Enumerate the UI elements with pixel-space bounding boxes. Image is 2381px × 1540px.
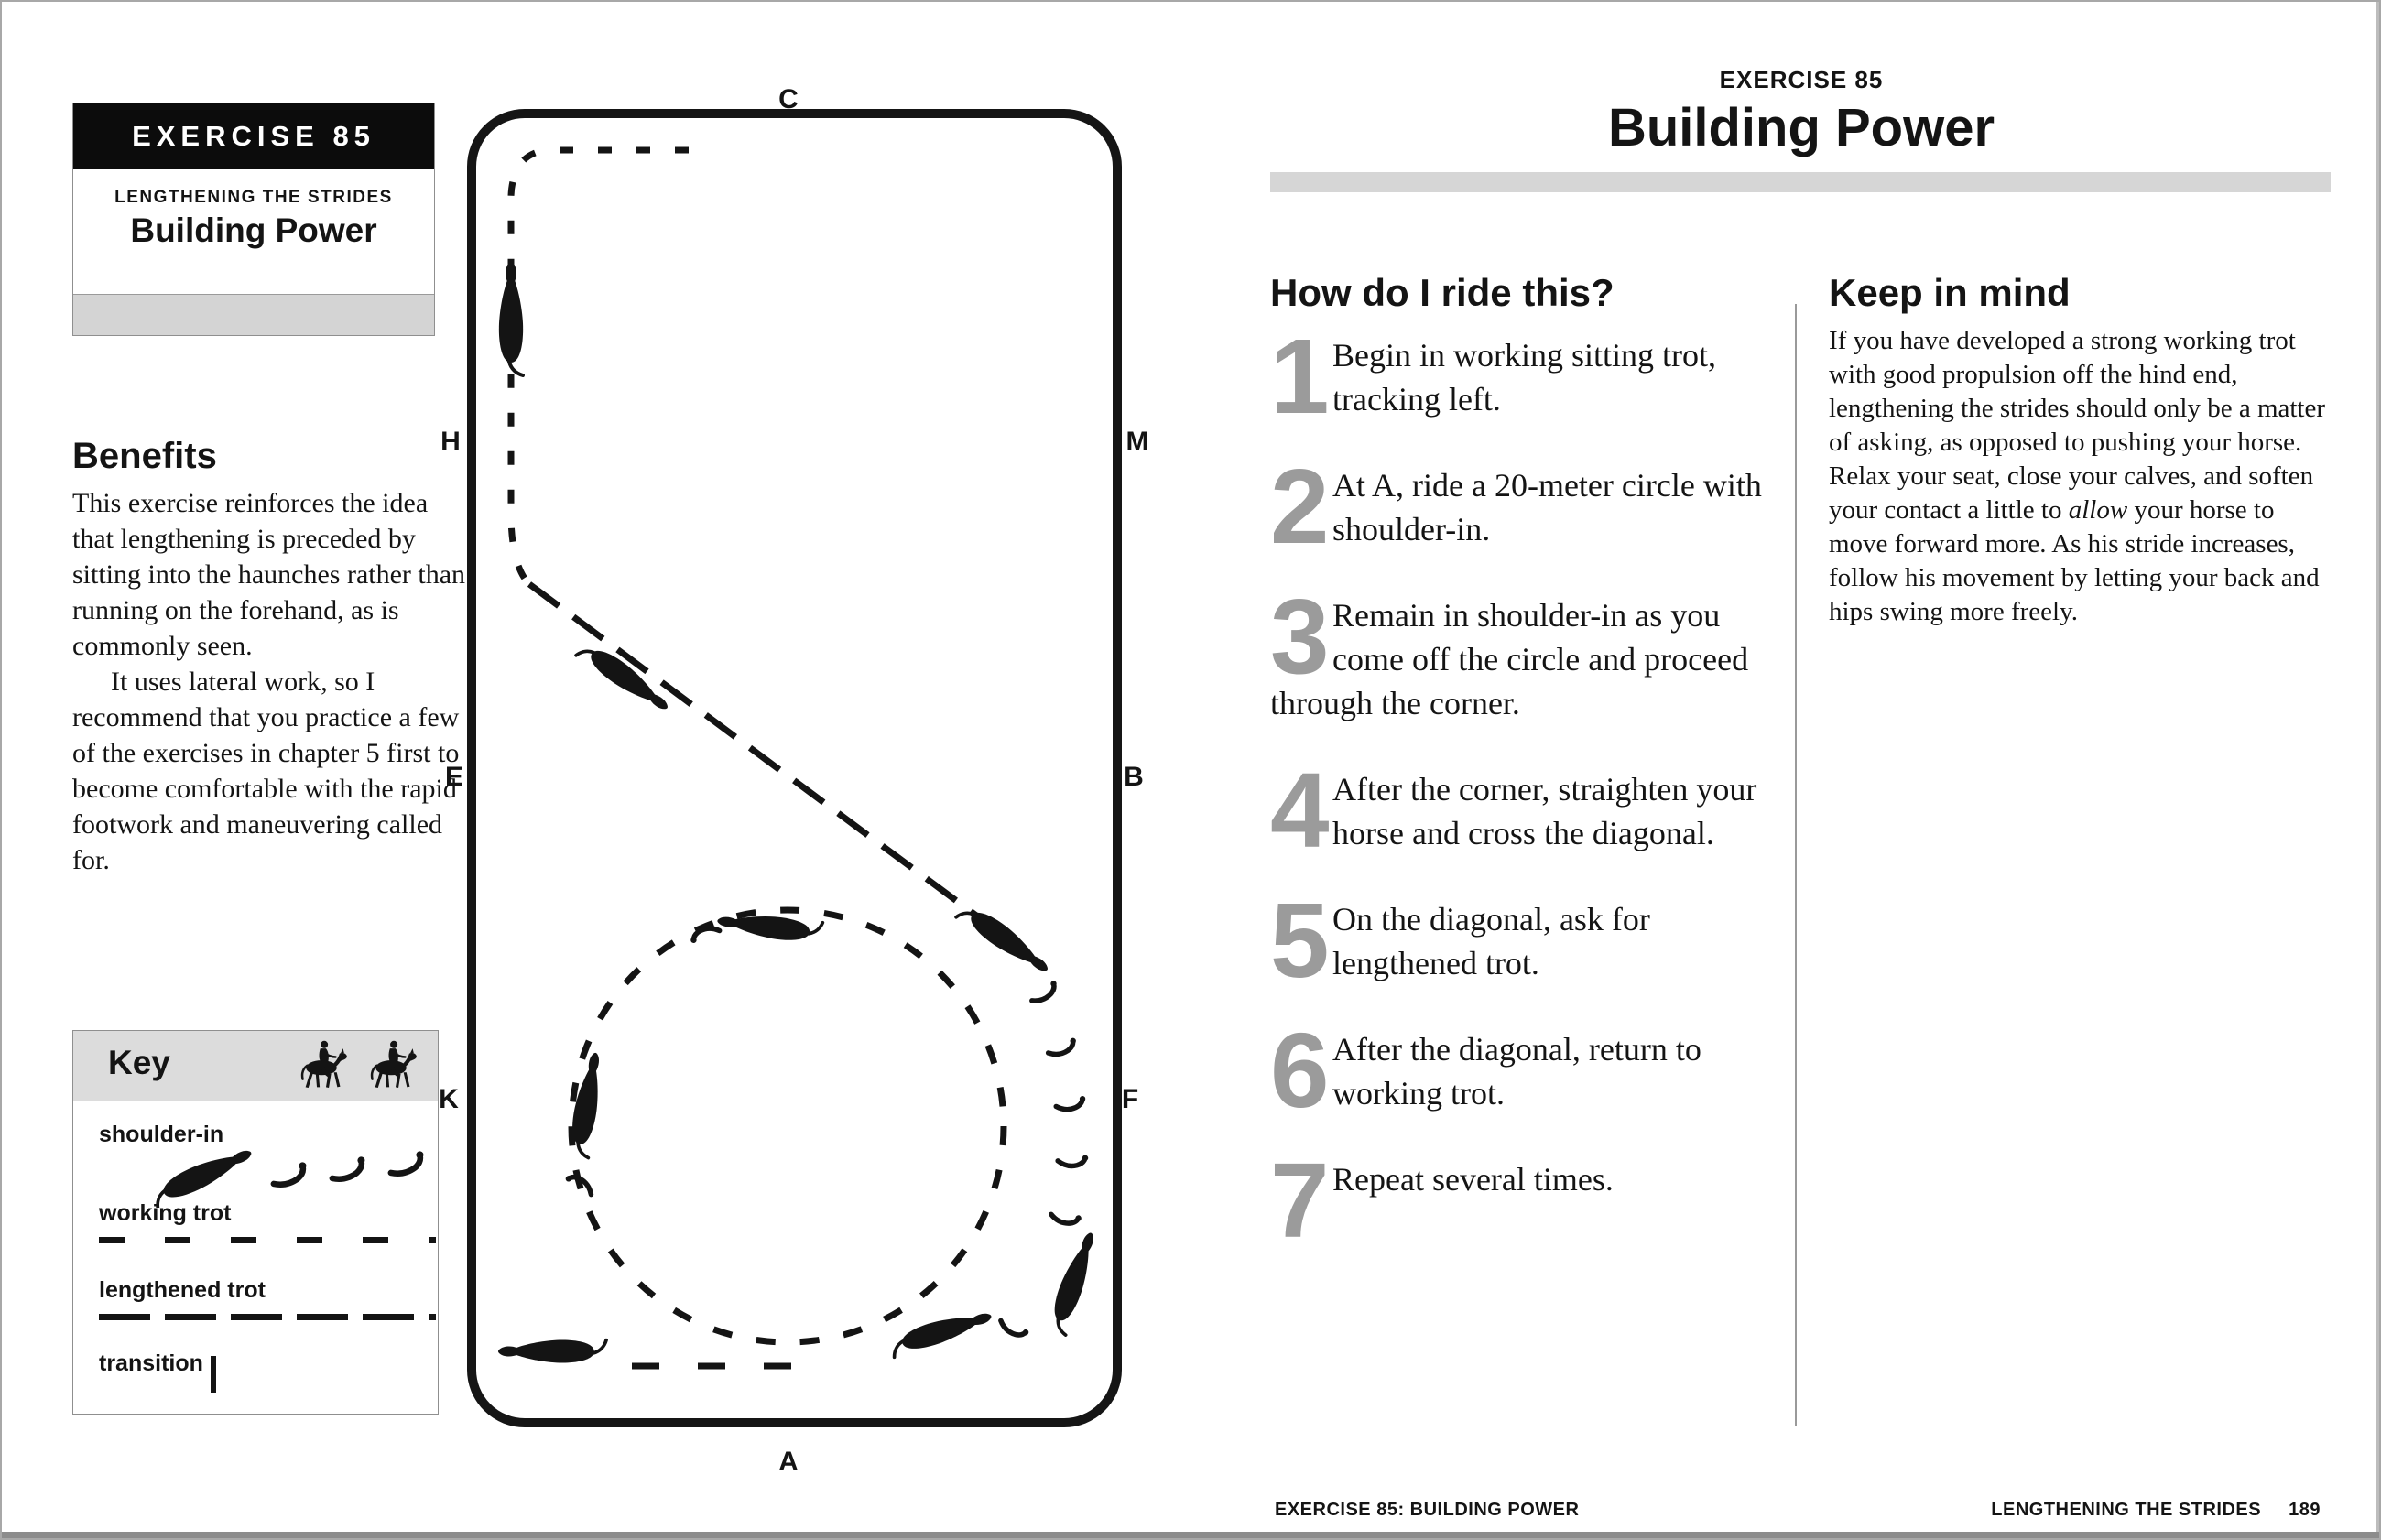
working-trot-path [511,150,689,582]
benefits-text: This exercise reinforces the idea that l… [72,485,468,878]
step-text: On the diagonal, ask for lengthened trot… [1332,901,1650,981]
lengthened-trot-line [99,1314,436,1320]
step-number: 4 [1270,767,1332,854]
horse-top-icon [716,910,822,945]
arena-letter-h: H [440,427,461,457]
benefits-heading: Benefits [72,436,217,477]
horse-top-icon [498,1340,606,1363]
working-trot-line [99,1237,436,1243]
step-6: 6 After the diagonal, return to working … [1270,1027,1785,1115]
horse-rider-icon [372,1041,417,1088]
step-number: 1 [1270,333,1332,420]
horse-top-icon [956,899,1054,979]
shoulder-in-hook-icon [1050,1201,1082,1231]
footer-series-label: LENGTHENING THE STRIDES [1991,1500,2261,1520]
horse-top-icon [1045,1229,1102,1335]
horse-top-icon [888,1306,995,1358]
horse-top-icon [576,637,674,717]
key-header: Key [72,1030,439,1101]
twenty-meter-circle [571,910,1004,1342]
horse-rider-icon [302,1041,347,1088]
key-label-working-trot: working trot [99,1200,231,1227]
arena-letter-c: C [778,84,799,114]
footer-left-running-head: EXERCISE 85: BUILDING POWER [1275,1500,1579,1521]
arena-letter-k: K [439,1084,459,1114]
step-7: 7 Repeat several times. [1270,1157,1785,1201]
step-text: After the corner, straighten your horse … [1332,771,1756,851]
step-number: 6 [1270,1027,1332,1114]
arena-border [472,114,1117,1423]
step-text: At A, ride a 20-meter circle with should… [1332,467,1762,548]
page-number: 189 [2289,1500,2321,1520]
column-divider [1795,304,1797,1426]
horse-top-icon [148,1142,256,1208]
keep-text-italic: allow [2069,495,2127,525]
key-label-transition: transition [99,1350,203,1377]
step-5: 5 On the diagonal, ask for lengthened tr… [1270,897,1785,985]
how-heading: How do I ride this? [1270,271,1615,315]
page-edge-right [2376,2,2379,1538]
step-number: 5 [1270,897,1332,984]
exercise-title-block: LENGTHENING THE STRIDES Building Power [73,188,434,294]
shoulder-in-hook-icon [1029,981,1059,1002]
horse-top-icon [567,1051,607,1158]
shoulder-in-hook-icon [330,1156,367,1180]
step-text: Repeat several times. [1332,1161,1614,1198]
shoulder-in-hook-icon [690,926,720,948]
step-1: 1 Begin in working sitting trot, trackin… [1270,333,1785,421]
benefits-paragraph-2: It uses lateral work, so I recommend tha… [72,664,468,878]
step-number: 3 [1270,593,1332,680]
right-exercise-label: EXERCISE 85 [1270,66,2332,94]
exercise-header-box: EXERCISE 85 LENGTHENING THE STRIDES Buil… [72,103,435,336]
shoulder-in-hook-icon [388,1151,426,1175]
shoulder-in-hook-icon [1058,1145,1089,1172]
arena-letter-f: F [1122,1084,1138,1114]
step-2: 2 At A, ride a 20-meter circle with shou… [1270,463,1785,551]
transition-mark [211,1356,216,1393]
shoulder-in-hook-icon [1049,1036,1076,1056]
exercise-number-banner: EXERCISE 85 [73,103,434,169]
benefits-paragraph-1: This exercise reinforces the idea that l… [72,485,468,664]
shoulder-in-hook-icon [1000,1311,1029,1343]
step-text: Begin in working sitting trot, tracking … [1332,337,1716,418]
key-label-lengthened-trot: lengthened trot [99,1277,266,1304]
exercise-title: Building Power [73,211,434,250]
shoulder-in-hook-icon [1056,1090,1086,1114]
steps-list: 1 Begin in working sitting trot, trackin… [1270,333,1785,1244]
right-page-title: Building Power [1270,97,2332,158]
shoulder-in-symbol [73,1134,440,1208]
step-text: After the diagonal, return to working tr… [1332,1031,1701,1112]
key-title: Key [108,1044,170,1082]
title-gray-bar [1270,172,2331,192]
step-4: 4 After the corner, straighten your hors… [1270,767,1785,855]
header-gray-bar [73,294,434,335]
book-spread: EXERCISE 85 LENGTHENING THE STRIDES Buil… [0,0,2381,1540]
key-body: shoulder-in working trot lengthened trot… [72,1101,439,1415]
lengthened-trot-diagonal [529,584,1018,947]
arena-letter-b: B [1124,762,1144,792]
series-label: LENGTHENING THE STRIDES [73,188,434,208]
key-legend-box: Key shoulder-in working trot [72,1030,439,1415]
shoulder-in-hook-icon [565,1170,593,1202]
footer-right-running-head: LENGTHENING THE STRIDES189 [1991,1500,2321,1521]
step-3: 3 Remain in shoulder-in as you come off … [1270,593,1785,725]
keep-in-mind-heading: Keep in mind [1829,271,2071,315]
arena-diagram: C A H E K M B F [423,57,1192,1485]
page-edge-bottom [2,1532,2379,1538]
arena-letter-a: A [778,1447,799,1477]
arena-letter-m: M [1126,427,1149,457]
horse-rider-icons [291,1036,429,1097]
keep-in-mind-text: If you have developed a strong working t… [1829,324,2338,629]
step-number: 7 [1270,1157,1332,1244]
step-text: Remain in shoulder-in as you come off th… [1270,597,1748,721]
horse-top-icon [499,262,523,375]
shoulder-in-hook-icon [271,1162,309,1186]
step-number: 2 [1270,463,1332,550]
